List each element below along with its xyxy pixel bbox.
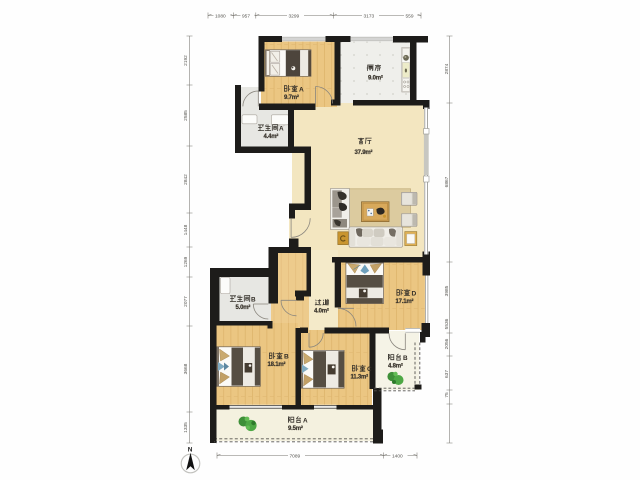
svg-text:N: N xyxy=(188,447,193,454)
svg-text:2056: 2056 xyxy=(444,338,450,349)
svg-text:A: A xyxy=(303,418,308,425)
svg-text:17.1m²: 17.1m² xyxy=(396,298,414,305)
svg-text:3668: 3668 xyxy=(183,363,189,374)
svg-text:3985: 3985 xyxy=(444,285,450,296)
svg-text:1448: 1448 xyxy=(183,224,189,235)
svg-text:75: 75 xyxy=(444,392,450,398)
svg-text:4.0m²: 4.0m² xyxy=(314,307,329,314)
svg-text:2192: 2192 xyxy=(183,55,189,66)
svg-text:4.4m²: 4.4m² xyxy=(264,133,279,140)
svg-text:C: C xyxy=(367,366,372,373)
svg-text:5536: 5536 xyxy=(444,318,450,329)
svg-text:9.0m²: 9.0m² xyxy=(368,75,383,82)
svg-text:637: 637 xyxy=(444,370,450,378)
svg-text:6867: 6867 xyxy=(444,176,450,187)
svg-text:A: A xyxy=(299,86,304,93)
svg-text:7089: 7089 xyxy=(290,453,301,459)
svg-text:1080: 1080 xyxy=(215,13,226,19)
svg-text:18.1m²: 18.1m² xyxy=(268,361,286,368)
svg-text:559: 559 xyxy=(406,13,414,19)
svg-text:3299: 3299 xyxy=(289,13,300,19)
svg-text:D: D xyxy=(412,290,417,297)
svg-text:B: B xyxy=(284,354,289,361)
svg-text:9.7m²: 9.7m² xyxy=(284,94,299,101)
svg-text:5.0m²: 5.0m² xyxy=(236,304,251,311)
svg-text:11.3m²: 11.3m² xyxy=(351,374,369,381)
svg-text:A: A xyxy=(279,126,284,133)
svg-text:957: 957 xyxy=(242,13,250,19)
svg-text:1269: 1269 xyxy=(183,256,189,267)
svg-text:37.9m²: 37.9m² xyxy=(355,149,373,156)
svg-text:B: B xyxy=(251,297,256,304)
svg-text:2585: 2585 xyxy=(183,110,189,121)
svg-text:B: B xyxy=(403,355,408,362)
svg-text:4.8m²: 4.8m² xyxy=(388,363,403,370)
svg-text:2077: 2077 xyxy=(183,296,189,307)
svg-text:9.5m²: 9.5m² xyxy=(288,425,303,432)
svg-text:2874: 2874 xyxy=(444,63,450,74)
svg-text:3173: 3173 xyxy=(364,13,375,19)
svg-text:1335: 1335 xyxy=(183,422,189,433)
svg-text:2842: 2842 xyxy=(183,174,189,185)
svg-text:1400: 1400 xyxy=(392,453,403,459)
